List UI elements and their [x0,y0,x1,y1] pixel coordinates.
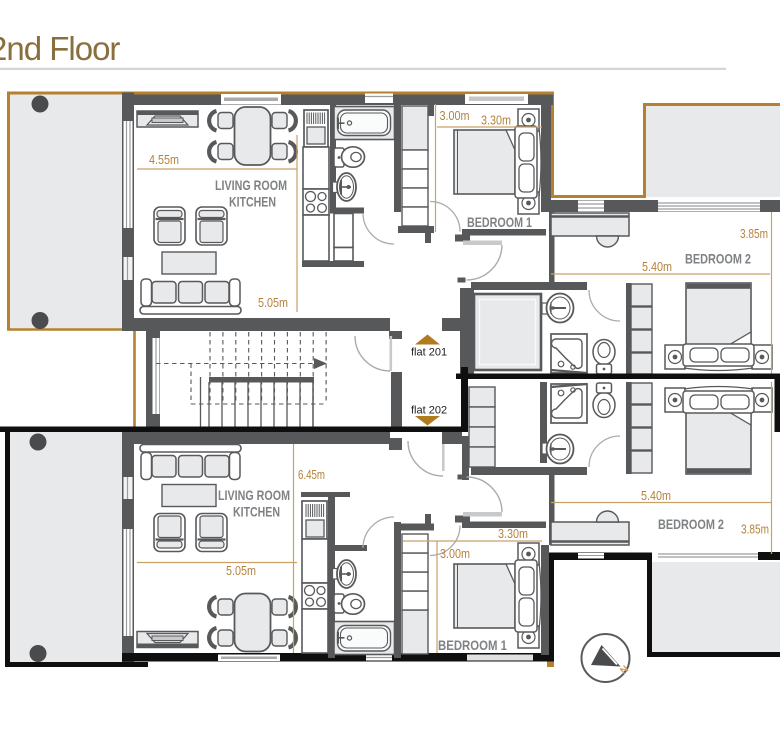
svg-text:5.05m: 5.05m [226,564,256,578]
svg-text:BEDROOM 1: BEDROOM 1 [467,214,532,230]
svg-text:3.00m: 3.00m [440,109,470,123]
svg-text:4.55m: 4.55m [149,153,179,167]
svg-text:LIVING ROOM: LIVING ROOM [215,177,287,193]
svg-text:3.30m: 3.30m [498,527,528,541]
svg-text:KITCHEN: KITCHEN [233,504,280,520]
svg-text:BEDROOM 2: BEDROOM 2 [685,251,751,267]
svg-text:3.30m: 3.30m [481,114,511,128]
svg-text:3.85m: 3.85m [740,227,768,241]
svg-text:KITCHEN: KITCHEN [229,194,276,210]
svg-text:5.05m: 5.05m [258,296,288,310]
svg-text:2nd Floor: 2nd Floor [0,30,120,67]
svg-text:flat 201: flat 201 [411,347,447,359]
svg-text:6.45m: 6.45m [298,468,325,482]
svg-text:LIVING ROOM: LIVING ROOM [218,487,290,503]
svg-text:5.40m: 5.40m [642,260,672,274]
svg-text:flat 202: flat 202 [411,405,447,417]
svg-text:5.40m: 5.40m [641,489,671,503]
svg-text:BEDROOM 1: BEDROOM 1 [438,637,507,653]
svg-text:BEDROOM 2: BEDROOM 2 [658,516,724,532]
svg-text:3.85m: 3.85m [741,523,769,537]
svg-text:3.00m: 3.00m [440,547,470,561]
